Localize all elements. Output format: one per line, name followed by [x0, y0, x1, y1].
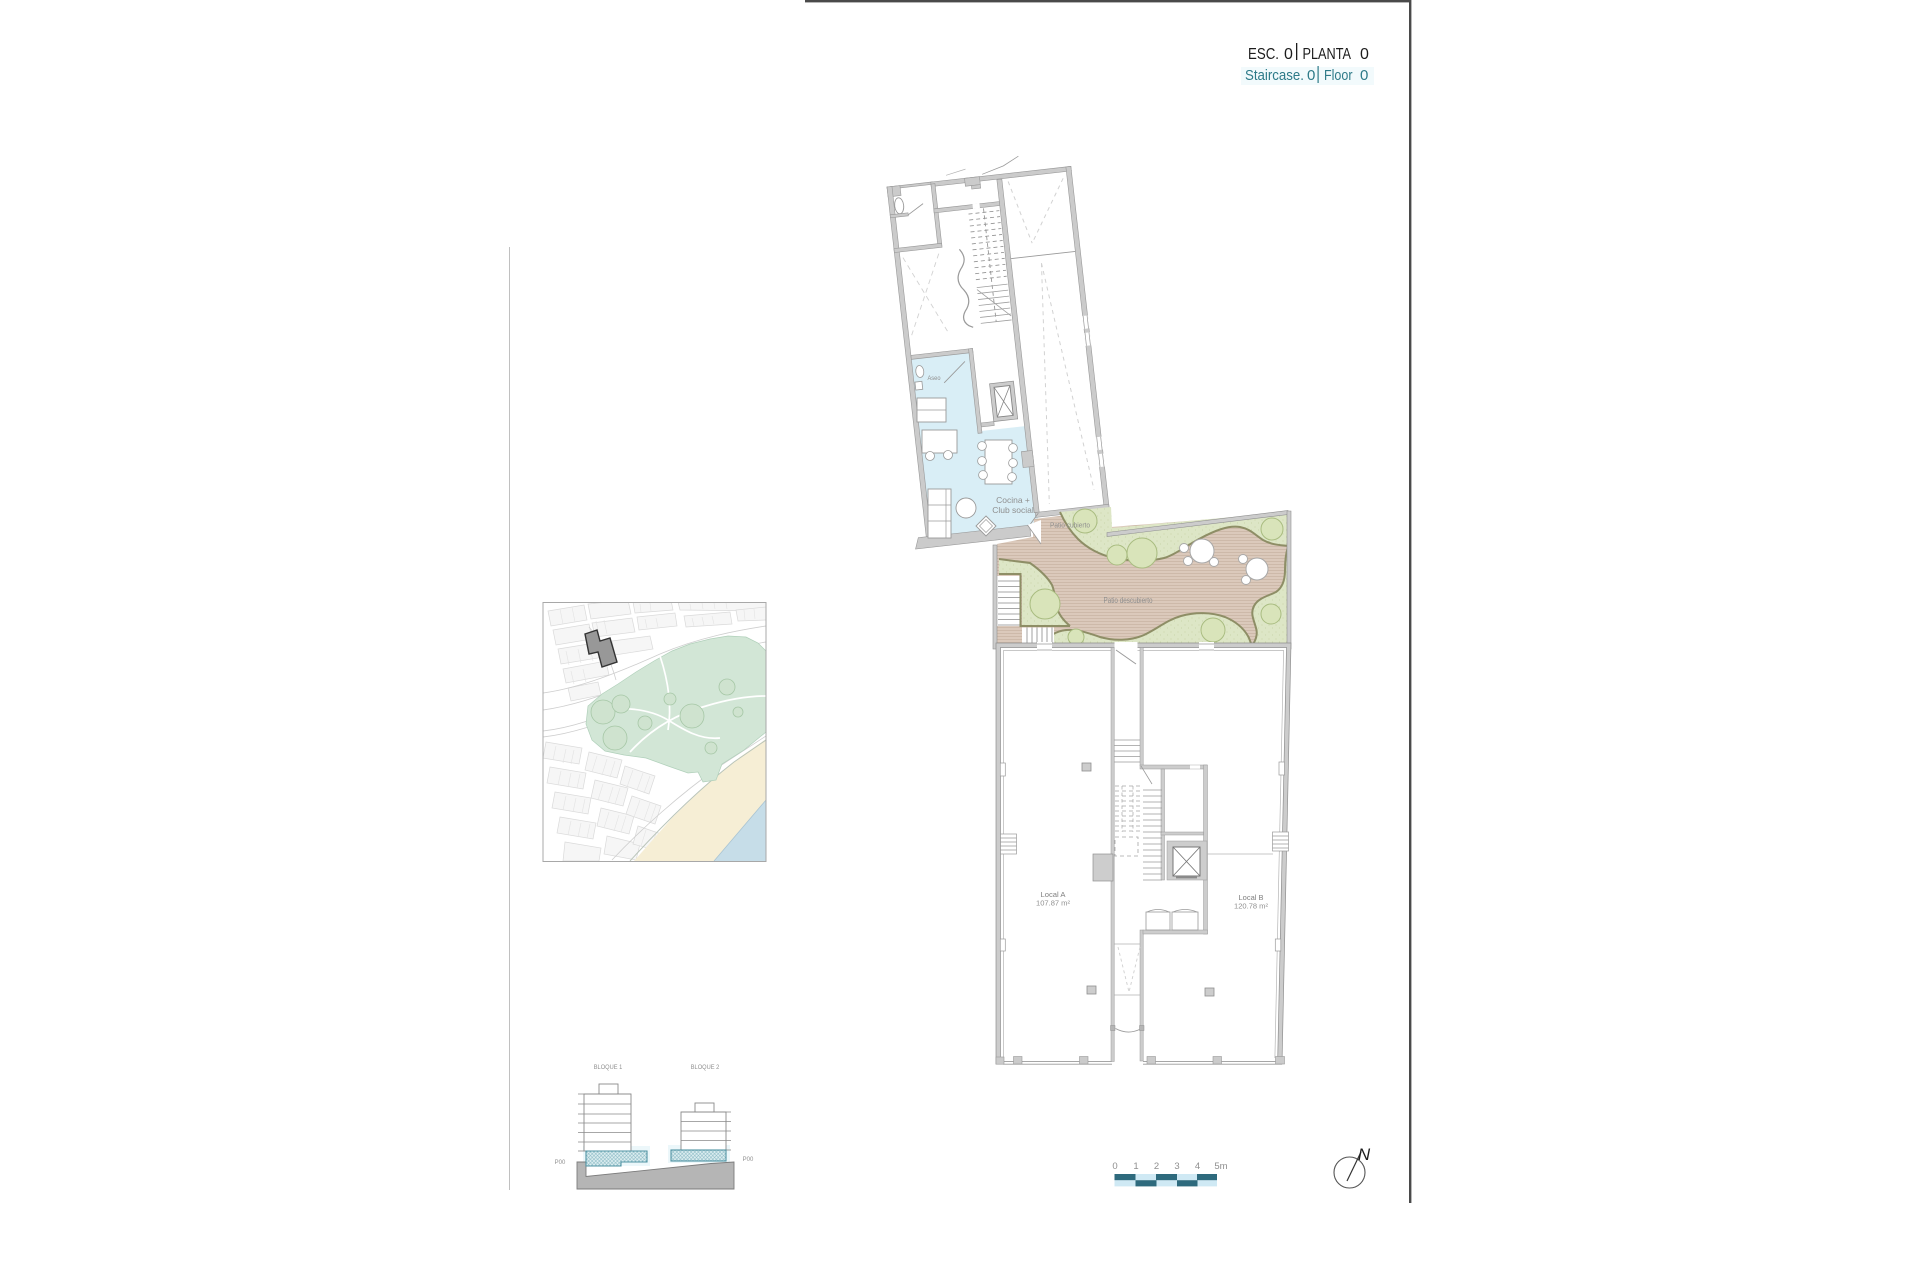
svg-text:PLANTA: PLANTA — [1303, 46, 1352, 63]
svg-text:Patio cubierto: Patio cubierto — [1050, 523, 1090, 530]
svg-text:Aseo: Aseo — [928, 375, 941, 382]
svg-text:4: 4 — [1195, 1161, 1200, 1172]
svg-text:Club social: Club social — [992, 505, 1034, 515]
svg-text:1: 1 — [1133, 1161, 1138, 1172]
svg-text:120.78 m²: 120.78 m² — [1234, 902, 1268, 911]
svg-text:P00: P00 — [743, 1157, 754, 1163]
svg-text:Staircase.: Staircase. — [1245, 67, 1304, 84]
svg-text:107.87 m²: 107.87 m² — [1036, 899, 1070, 908]
svg-text:3: 3 — [1174, 1161, 1179, 1172]
svg-text:ESC.: ESC. — [1248, 46, 1279, 63]
svg-text:N: N — [1358, 1145, 1371, 1164]
svg-text:P00: P00 — [555, 1160, 566, 1166]
svg-text:0: 0 — [1360, 67, 1368, 84]
svg-text:BLOQUE 1: BLOQUE 1 — [594, 1064, 623, 1071]
svg-text:0: 0 — [1360, 46, 1369, 63]
svg-text:Patio descubierto: Patio descubierto — [1104, 595, 1153, 605]
svg-text:5m: 5m — [1214, 1161, 1227, 1172]
svg-text:0: 0 — [1112, 1161, 1117, 1172]
svg-text:Cocina +: Cocina + — [996, 495, 1030, 505]
svg-text:0: 0 — [1284, 46, 1293, 63]
svg-text:BLOQUE 2: BLOQUE 2 — [691, 1064, 720, 1071]
svg-text:0: 0 — [1307, 67, 1315, 84]
svg-text:2: 2 — [1154, 1161, 1159, 1172]
svg-text:Floor: Floor — [1324, 67, 1353, 84]
